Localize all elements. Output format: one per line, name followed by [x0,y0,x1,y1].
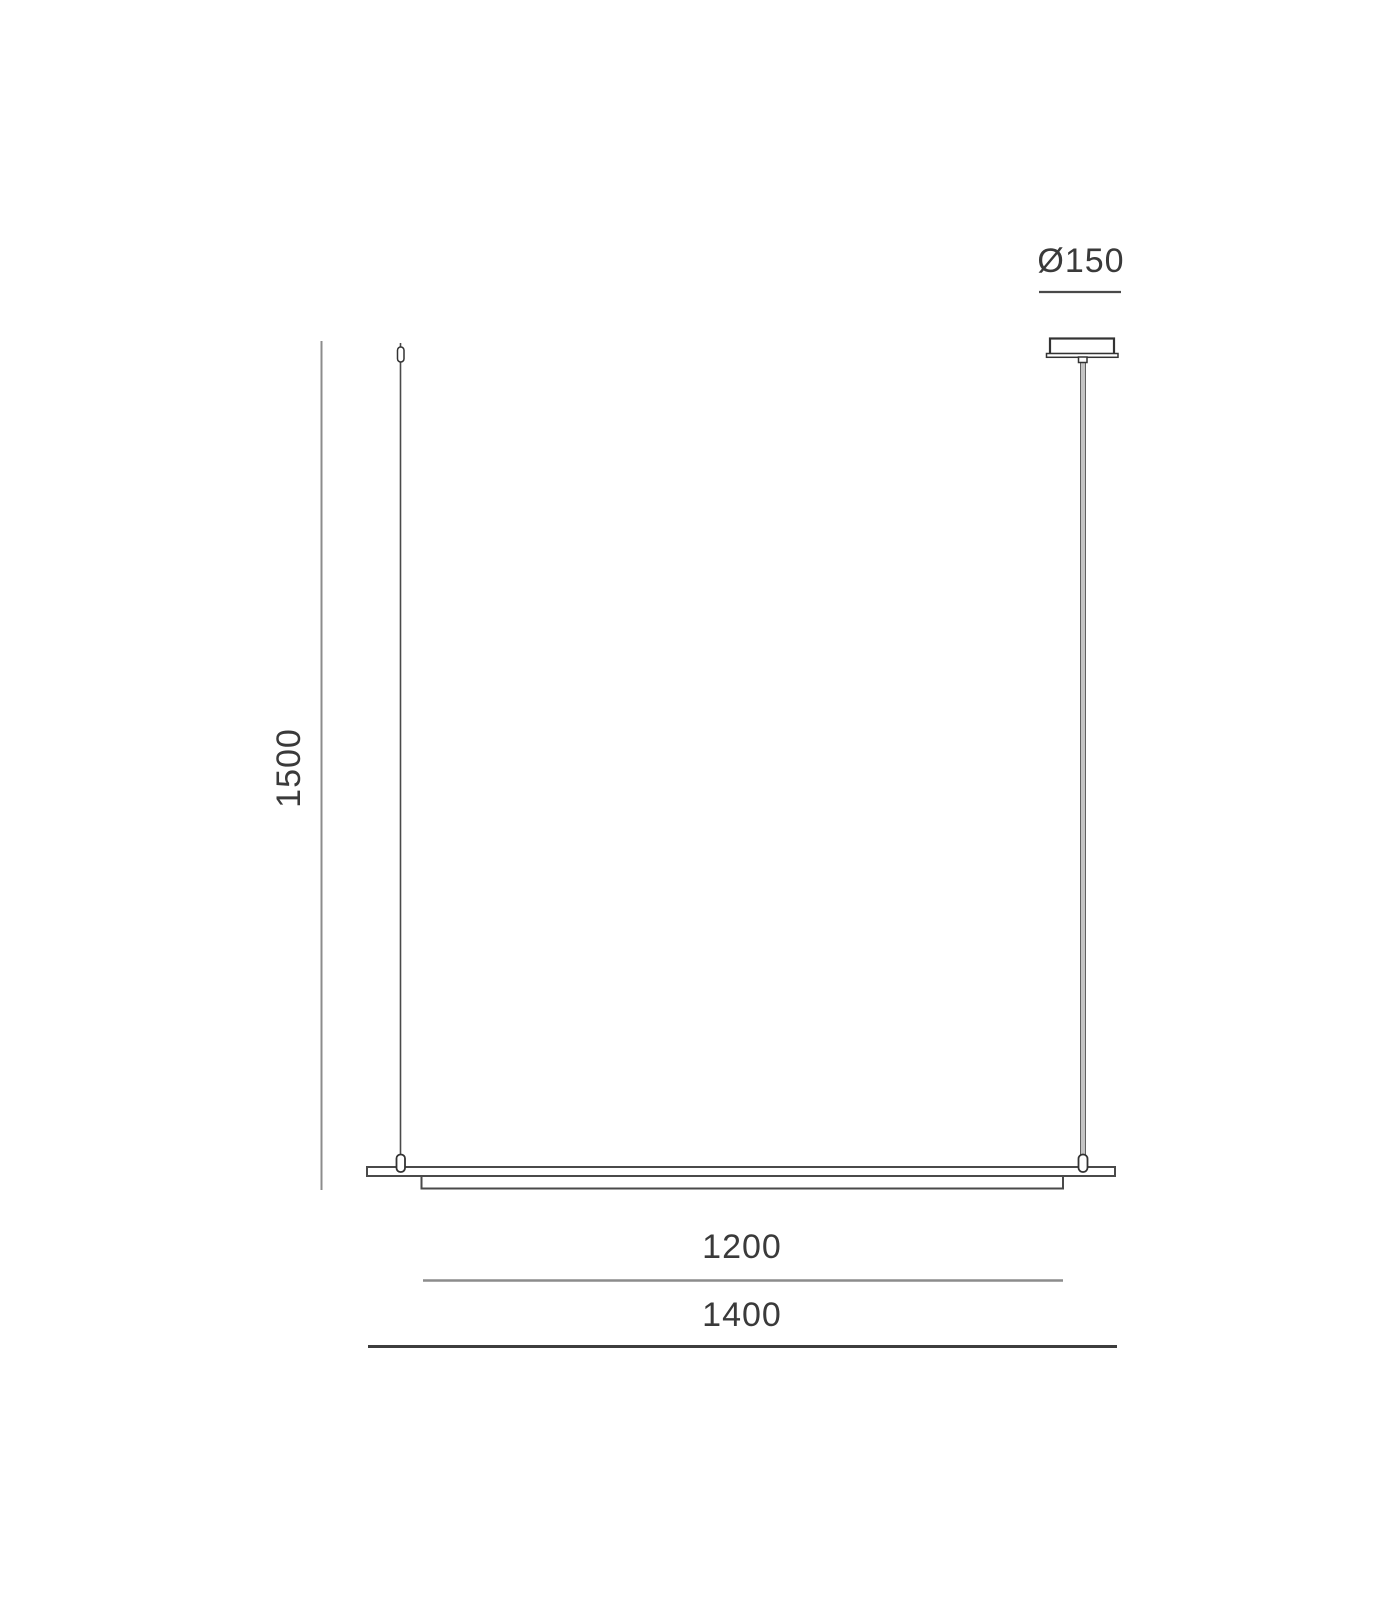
right-suspension-rod [1081,361,1086,1157]
canopy-diameter-label: Ø150 [1037,244,1124,278]
height-dimension-label: 1500 [272,728,306,808]
inner-width-label: 1200 [702,1230,782,1264]
fixture-diffuser-profile [422,1176,1064,1189]
overall-width-label: 1400 [702,1298,782,1332]
left-cable-ferrule [397,1155,406,1173]
dimension-drawing-canvas: 1500 Ø150 1200 1400 [0,0,1400,1600]
canopy-stem [1079,357,1088,363]
fixture-bar [367,1167,1115,1176]
cable-top-ferrule [398,347,405,362]
right-rod-ferrule [1079,1155,1088,1173]
canopy-body [1050,339,1114,355]
pendant-light-drawing [0,0,1400,1600]
